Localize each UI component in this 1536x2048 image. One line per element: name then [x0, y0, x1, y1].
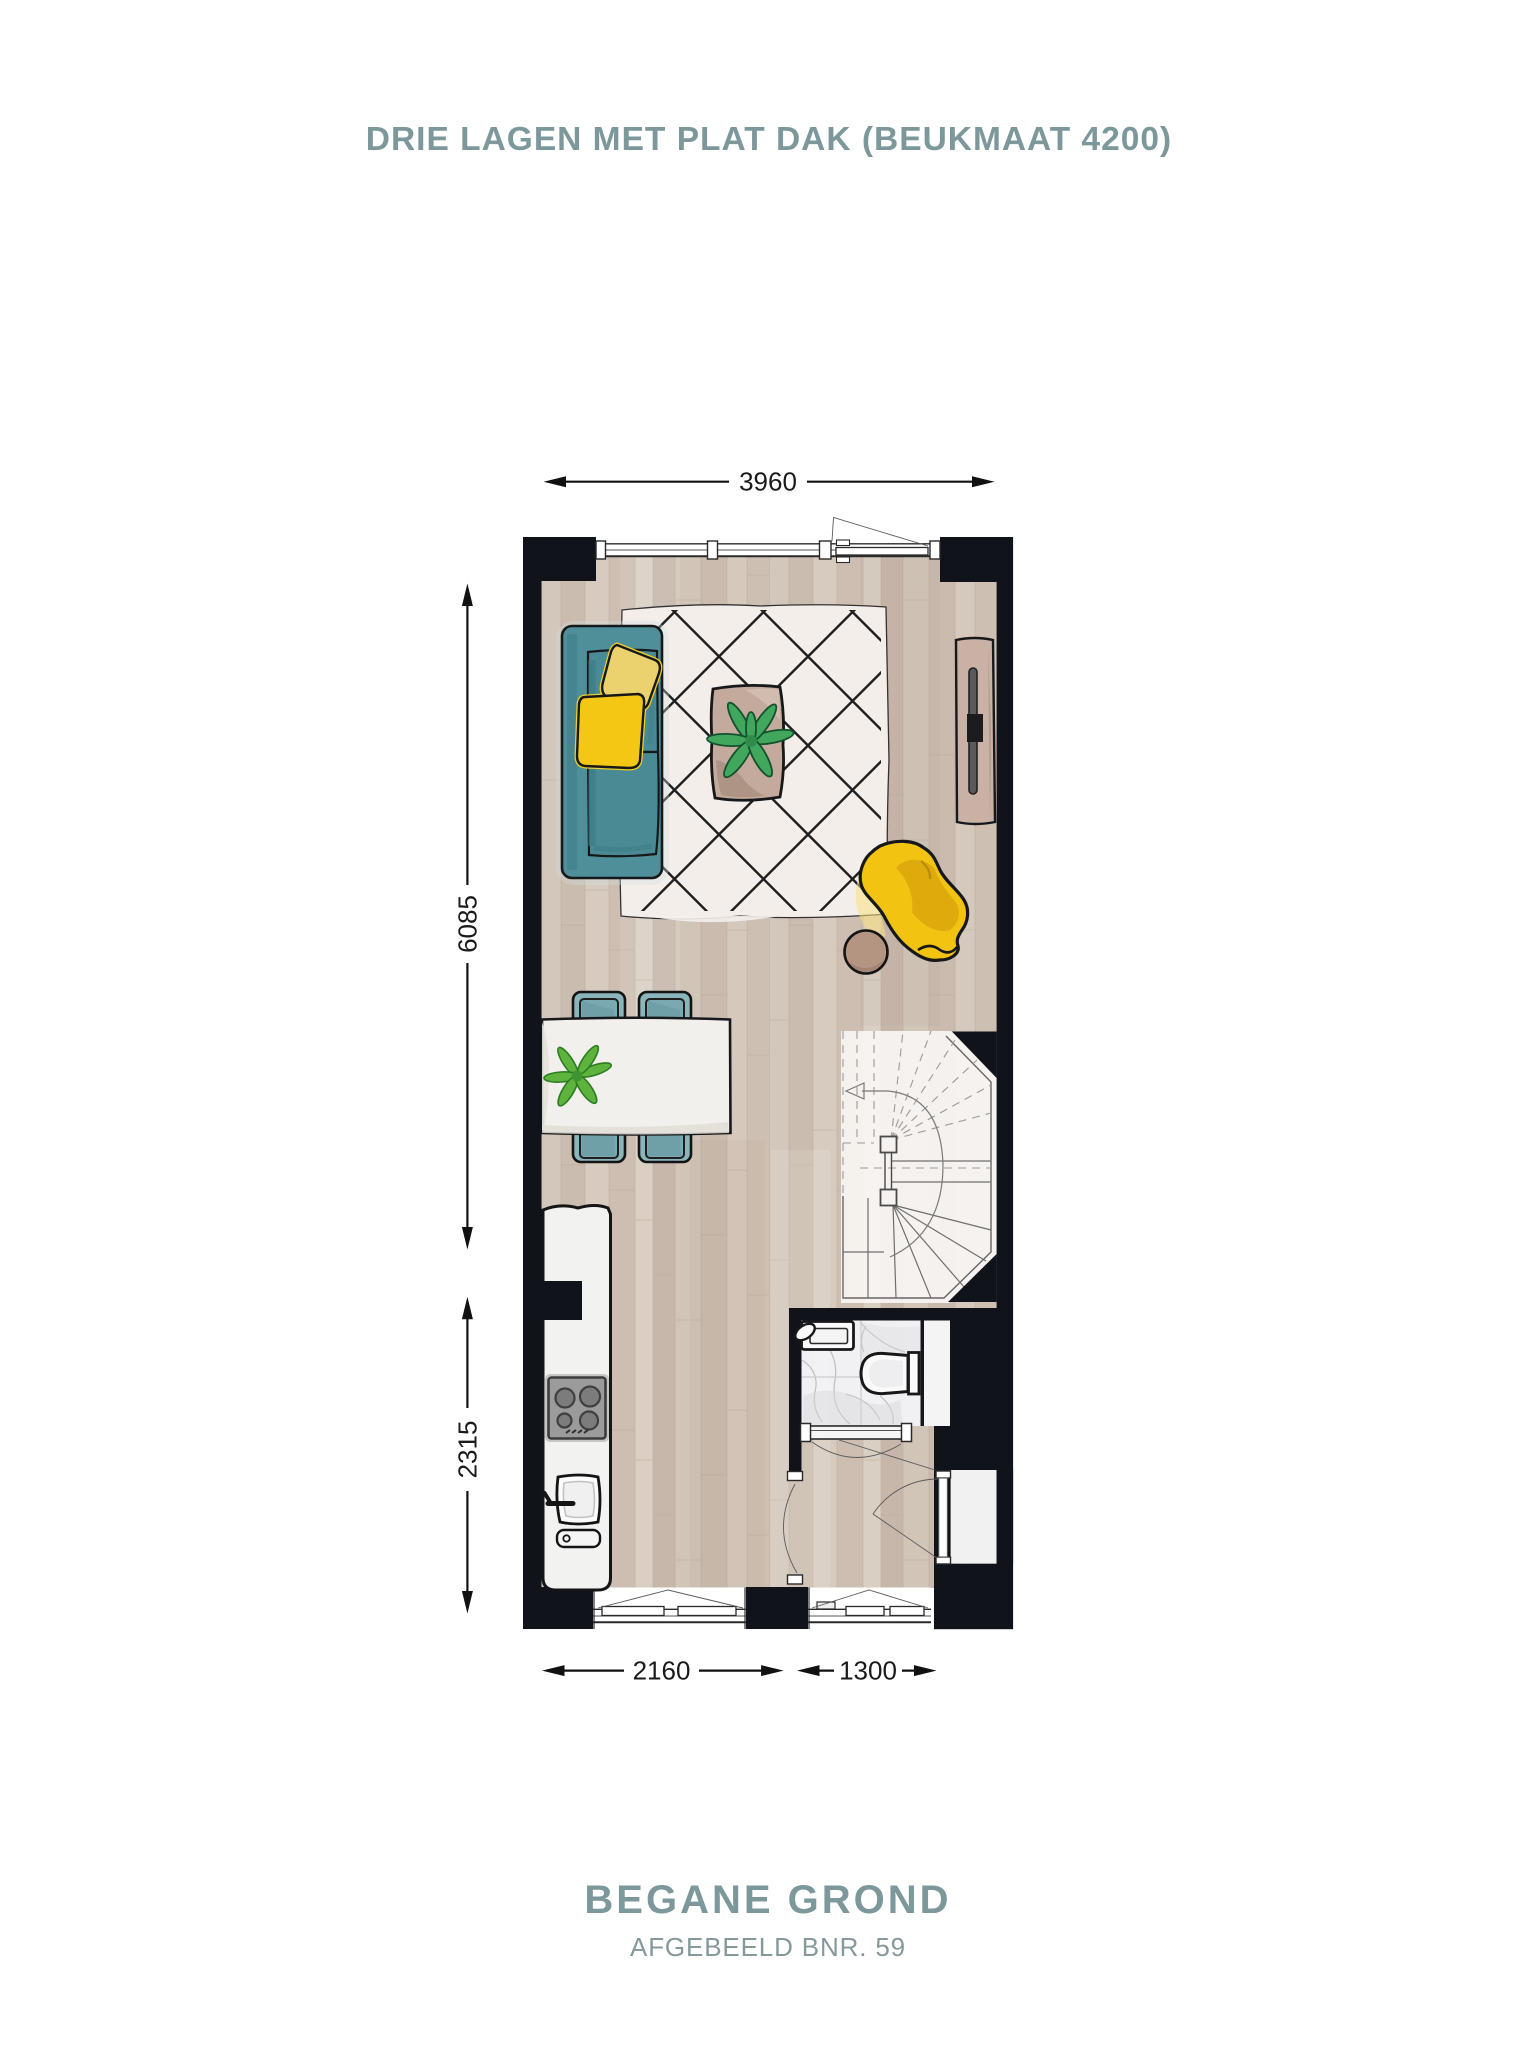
svg-text:2315: 2315 — [452, 1421, 482, 1479]
svg-text:6085: 6085 — [452, 895, 482, 953]
svg-text:2160: 2160 — [633, 1656, 691, 1686]
svg-text:AFGEBEELD BNR. 59: AFGEBEELD BNR. 59 — [630, 1932, 906, 1962]
svg-text:1300: 1300 — [839, 1656, 897, 1686]
svg-text:BEGANE GROND: BEGANE GROND — [584, 1878, 951, 1922]
svg-text:DRIE LAGEN MET PLAT DAK (BEUKM: DRIE LAGEN MET PLAT DAK (BEUKMAAT 4200) — [366, 121, 1172, 158]
svg-text:3960: 3960 — [739, 467, 797, 497]
